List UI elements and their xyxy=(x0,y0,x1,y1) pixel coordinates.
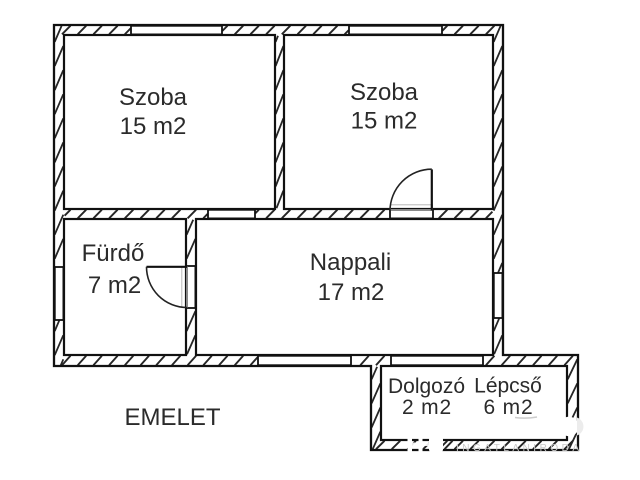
svg-text:Lépcső: Lépcső xyxy=(474,375,542,398)
svg-text:6 m2: 6 m2 xyxy=(484,396,534,419)
svg-text:15 m2: 15 m2 xyxy=(351,108,418,135)
svg-text:15 m2: 15 m2 xyxy=(120,113,187,140)
svg-text:INGATLANIRODA: INGATLANIRODA xyxy=(456,443,579,454)
svg-text:7 m2: 7 m2 xyxy=(88,272,141,299)
svg-text:Szoba: Szoba xyxy=(119,84,188,111)
svg-text:Nappali: Nappali xyxy=(310,249,391,276)
svg-text:Szoba: Szoba xyxy=(350,79,419,106)
svg-text:EMELET: EMELET xyxy=(124,404,220,431)
svg-text:17 m2: 17 m2 xyxy=(318,279,385,306)
svg-text:2 m2: 2 m2 xyxy=(402,396,452,419)
svg-text:Fürdő: Fürdő xyxy=(82,240,145,267)
svg-text:Dolgozó: Dolgozó xyxy=(388,375,465,398)
